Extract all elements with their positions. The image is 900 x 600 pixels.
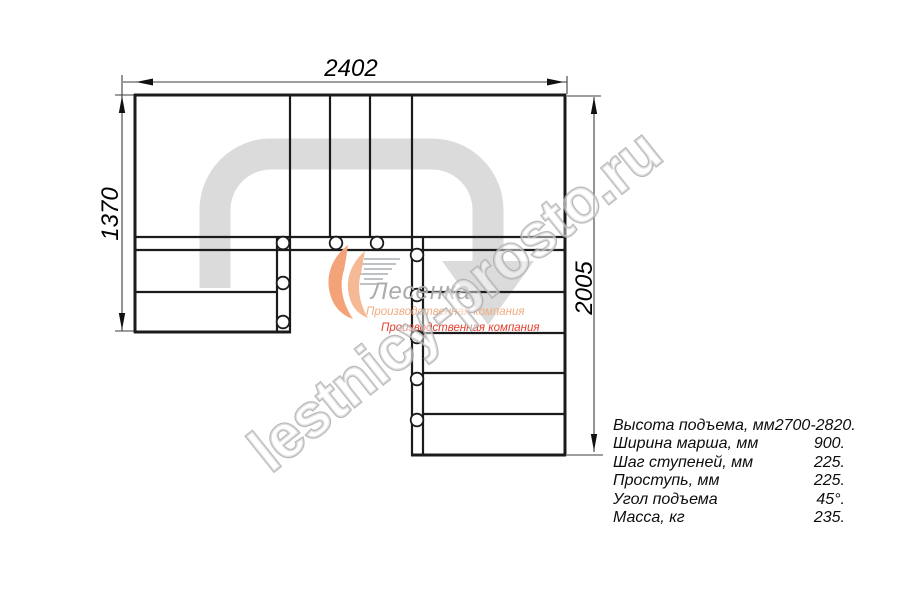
spec-label: Масса, кг xyxy=(613,509,685,527)
spec-label: Проступь, мм xyxy=(613,472,719,490)
spec-row-step-pitch: Шаг ступеней, мм 225. xyxy=(613,454,845,472)
spec-value: 235. xyxy=(814,509,845,527)
spec-label: Высота подъема, мм xyxy=(613,417,775,435)
spec-label: Угол подъема xyxy=(613,491,718,509)
spec-row-flight-width: Ширина марша, мм 900. xyxy=(613,435,845,453)
spec-row-mass: Масса, кг 235. xyxy=(613,509,845,527)
logo-tagline-red: Производственная компания xyxy=(381,322,540,334)
dimension-label-left-height: 1370 xyxy=(97,187,124,241)
spec-label: Шаг ступеней, мм xyxy=(613,454,753,472)
logo-company-name: Лесенка xyxy=(371,278,471,306)
spec-value: 225. xyxy=(814,472,845,490)
dimension-label-width: 2402 xyxy=(323,55,377,82)
spec-label: Ширина марша, мм xyxy=(613,435,758,453)
staircase-plan-page: 2402 1370 2005 Лесенка Производственная … xyxy=(0,0,900,600)
dimension-label-right-height: 2005 xyxy=(571,261,598,316)
spec-value: 2700-2820. xyxy=(775,417,856,435)
spec-row-angle: Угол подъема 45°. xyxy=(613,491,845,509)
logo-tagline-light: Производственная компания xyxy=(366,306,525,318)
spec-value: 45°. xyxy=(816,491,845,509)
spec-row-height: Высота подъема, мм 2700-2820. xyxy=(613,417,845,435)
spec-value: 900. xyxy=(814,435,845,453)
spec-table: Высота подъема, мм 2700-2820. Ширина мар… xyxy=(613,417,845,527)
spec-row-tread: Проступь, мм 225. xyxy=(613,472,845,490)
spec-value: 225. xyxy=(814,454,845,472)
